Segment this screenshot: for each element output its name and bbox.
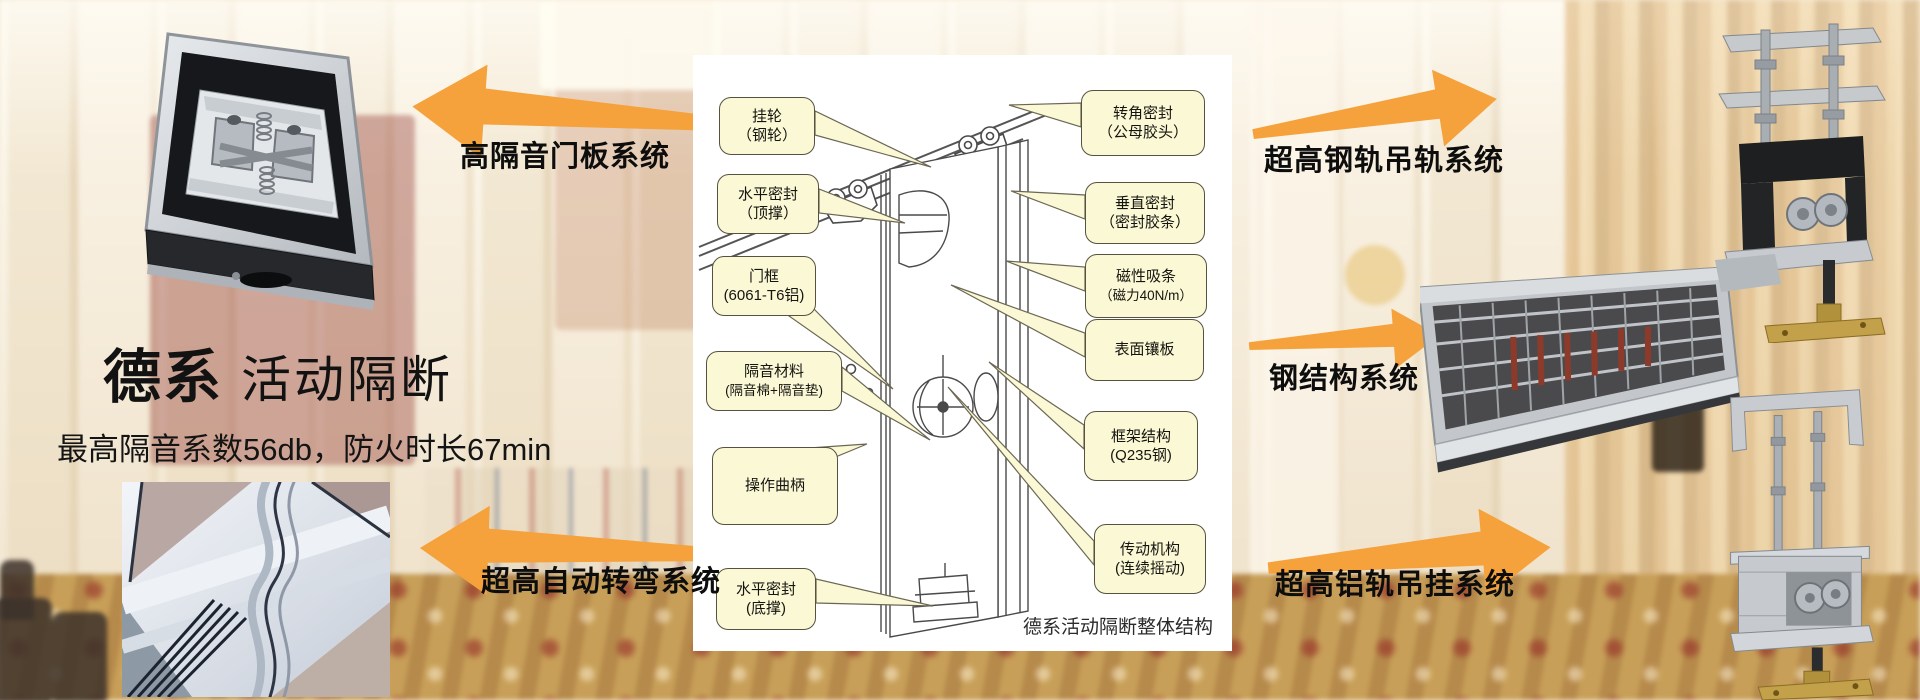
- callout-door-frame: 门框 (6061-T6铝): [712, 256, 816, 316]
- callout-hanging-wheel: 挂轮 （钢轮）: [719, 97, 815, 155]
- page-title: 德系 活动隔断: [103, 330, 453, 414]
- callout-bottom-seal: 水平密封 (底撑): [716, 568, 816, 630]
- subtitle: 最高隔音系数56db，防火时长67min: [57, 424, 551, 469]
- slide: 德系 活动隔断 最高隔音系数56db，防火时长67min 高隔: [0, 0, 1920, 700]
- callout-magnetic-strip: 磁性吸条 （磁力40N/m）: [1085, 254, 1207, 318]
- label-steel-structure-system: 钢结构系统: [1269, 355, 1419, 397]
- label-steel-track-system: 超高钢轨吊轨系统: [1264, 137, 1504, 179]
- diagram-panel: 挂轮 （钢轮） 水平密封 （顶撑） 门框 (6061-T6铝) 隔音材料 (隔音…: [693, 55, 1232, 651]
- chair: [0, 560, 34, 620]
- callout-vertical-seal: 垂直密封 （密封胶条）: [1085, 182, 1205, 244]
- curved-rail-system-photo: [122, 482, 390, 697]
- callout-crank-handle: 操作曲柄: [712, 447, 838, 525]
- chair: [52, 612, 107, 700]
- steel-track-hanger-photo: [1695, 8, 1895, 343]
- label-aluminum-track-system: 超高铝轨吊挂系统: [1275, 561, 1515, 603]
- diagram-caption: 德系活动隔断整体结构: [1013, 612, 1223, 639]
- callout-sound-insulation: 隔音材料 (隔音棉+隔音垫): [706, 351, 842, 411]
- callout-drive-mechanism: 传动机构 (连续摇动): [1094, 524, 1206, 594]
- door-panel-drawing: [881, 140, 1028, 637]
- brand-name: 德系: [103, 330, 223, 414]
- label-auto-turning-system: 超高自动转弯系统: [481, 558, 721, 600]
- door-panel-module-photo: [116, 18, 406, 318]
- callout-top-seal: 水平密封 （顶撑）: [717, 174, 819, 234]
- steel-structure-photo: [1420, 225, 1740, 475]
- label-door-panel-system: 高隔音门板系统: [460, 133, 670, 175]
- callout-surface-panel: 表面镶板: [1085, 319, 1204, 381]
- product-name: 活动隔断: [241, 340, 453, 412]
- callout-corner-seal: 转角密封 （公母胶头）: [1081, 90, 1205, 156]
- aluminum-track-hanger-photo: [1700, 368, 1890, 700]
- callout-frame-structure: 框架结构 (Q235钢): [1084, 411, 1198, 481]
